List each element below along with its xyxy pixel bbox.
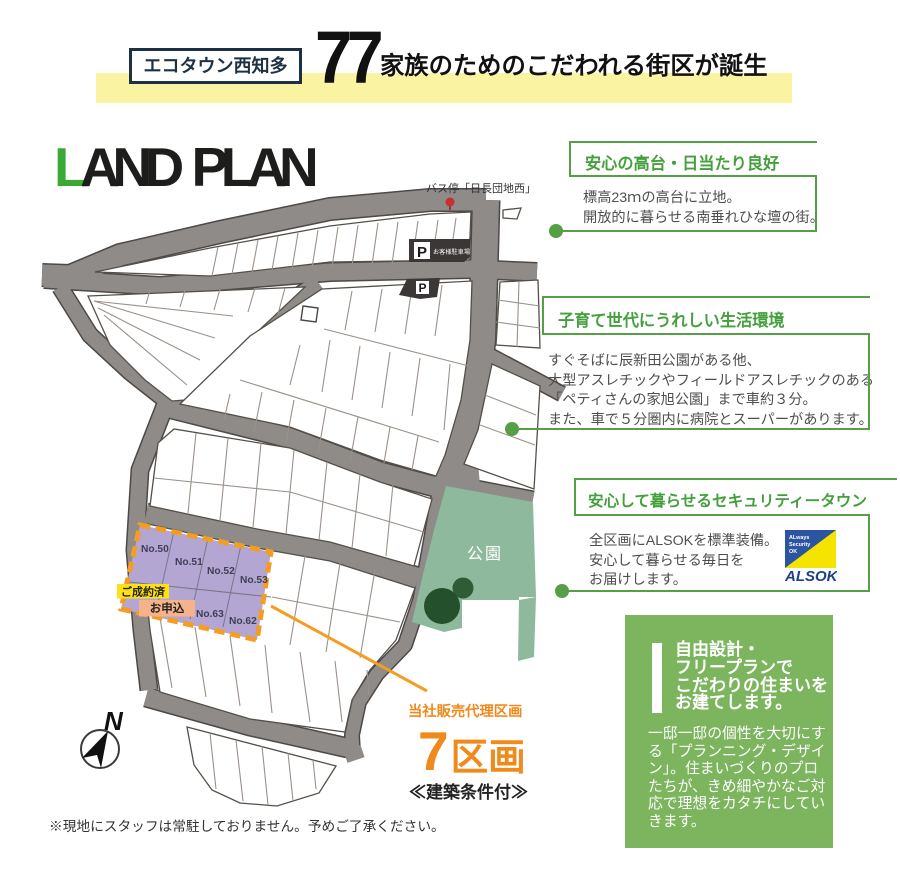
- svg-text:ALways: ALways: [789, 535, 809, 541]
- svg-text:No.63: No.63: [196, 609, 224, 620]
- svg-text:7区画: 7区画: [418, 720, 526, 782]
- svg-text:公園: 公園: [467, 546, 503, 563]
- svg-text:No.62: No.62: [229, 616, 257, 627]
- svg-text:≪建築条件付≫: ≪建築条件付≫: [409, 782, 528, 802]
- svg-text:No.52: No.52: [207, 566, 235, 577]
- svg-text:※現地にスタッフは常駐しておりません。予めご了承ください。: ※現地にスタッフは常駐しておりません。予めご了承ください。: [49, 819, 445, 834]
- svg-text:No.50: No.50: [141, 544, 169, 555]
- svg-text:No.53: No.53: [240, 575, 268, 586]
- svg-text:P: P: [417, 244, 427, 261]
- svg-text:Security: Security: [789, 542, 810, 548]
- svg-text:ご成約済: ご成約済: [121, 585, 166, 599]
- svg-text:No.51: No.51: [175, 557, 203, 568]
- svg-text:当社販売代理区画: 当社販売代理区画: [408, 702, 522, 720]
- svg-text:P: P: [419, 281, 427, 295]
- svg-text:ALSOK: ALSOK: [785, 568, 837, 582]
- svg-text:バス停「日長団地西」: バス停「日長団地西」: [426, 181, 536, 195]
- svg-text:OK: OK: [789, 549, 797, 555]
- svg-text:N: N: [104, 706, 124, 736]
- svg-text:お申込: お申込: [150, 601, 185, 615]
- svg-text:お客様駐車場: お客様駐車場: [433, 248, 470, 256]
